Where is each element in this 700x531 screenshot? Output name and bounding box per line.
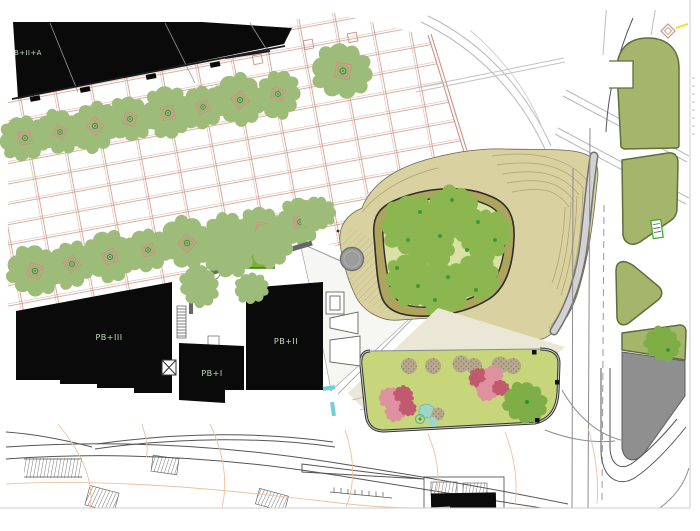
building-label-pb3: PB+III [95,333,122,342]
island-notch [609,61,633,88]
balusters [24,458,82,478]
site-plan-drawing: B+II+A [0,0,700,531]
building-label-pb1: PB+I [201,369,222,378]
building-label-block-a: B+II+A [14,49,42,57]
lawn-bed [361,349,560,431]
stairs-pb1 [177,306,186,338]
building-label-pb2: PB+II [274,337,298,346]
site-plan-canvas[interactable]: B+II+A [0,0,700,531]
island-structure [651,219,663,238]
